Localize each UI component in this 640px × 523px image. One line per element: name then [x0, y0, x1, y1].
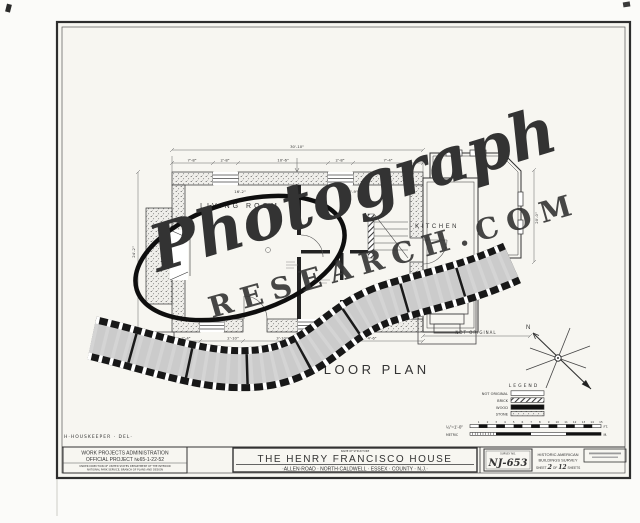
svg-text:5: 5: [513, 420, 515, 424]
dim-overall: 30'-10": [290, 144, 304, 149]
north-label: N: [526, 325, 530, 331]
svg-text:1: 1: [478, 420, 480, 424]
habs-line2: BUILDINGS SURVEY: [538, 458, 577, 463]
sheet-drawing: LIVING ROOM KITCHEN NOT ORIGINAL 30'-10"…: [0, 0, 640, 523]
delineator: H·HOUSKEEPER · DEL·: [64, 434, 133, 440]
legend-label-stone: STONE: [496, 412, 509, 416]
wpa-line1: WORK PROJECTS ADMINISTRATION: [81, 451, 169, 457]
wpa-line3: UNDER DIRECTION OF UNITED STATES DEPARTM…: [79, 464, 171, 468]
dim-top-3: 10'-6": [277, 158, 289, 163]
svg-text:9: 9: [548, 420, 550, 424]
of-word: OF: [553, 466, 557, 470]
svg-text:12: 12: [573, 420, 577, 424]
dim-bot-2: 2'-10": [227, 336, 239, 341]
structure-address: ·ALLEN·ROAD · NORTH·CALDWELL · ESSEX · C…: [282, 467, 428, 473]
svg-text:2: 2: [487, 420, 489, 424]
not-original-note: NOT ORIGINAL: [455, 330, 496, 335]
legend-label-wood: WOOD: [496, 406, 508, 410]
wpa-line4: NATIONAL PARK SERVICE, BRANCH OF PLANS A…: [87, 468, 163, 472]
total-num: 12: [558, 464, 566, 471]
legend-label-brick: BRICK: [497, 399, 509, 403]
scanned-habs-sheet: LIVING ROOM KITCHEN NOT ORIGINAL 30'-10"…: [0, 0, 640, 523]
wpa-line2: OFFICIAL PROJECT №65-1-22-52: [86, 457, 164, 463]
svg-text:3: 3: [495, 420, 497, 424]
dim-top-1: 7'-8": [188, 158, 197, 163]
sheet-word: SHEET: [536, 466, 547, 470]
scale-ratio: ¼"=1'-0": [446, 425, 463, 430]
svg-text:10: 10: [556, 420, 560, 424]
legend-label-not-original: NOT ORIGINAL: [482, 392, 508, 396]
svg-text:7: 7: [530, 420, 532, 424]
svg-text:13: 13: [582, 420, 586, 424]
metric-label: METRIC: [446, 433, 459, 437]
name-of-structure-label: NAME OF STRUCTURE: [341, 449, 370, 453]
metric-unit: M.: [604, 433, 608, 437]
habs-line1: HISTORIC AMERICAN: [537, 452, 578, 457]
svg-text:8: 8: [539, 420, 541, 424]
dim-left: 24'-2": [131, 246, 136, 258]
svg-text:15: 15: [599, 420, 603, 424]
feet-tick-numbers: 12 34 56 78 910 1112 1314 15: [478, 420, 603, 424]
structure-name: THE HENRY FRANCISCO HOUSE: [258, 454, 453, 465]
legend-title: LEGEND: [509, 383, 540, 389]
sheets-word: SHEETS: [567, 466, 580, 470]
svg-text:6: 6: [522, 420, 524, 424]
dim-top-2: 2'-8": [221, 158, 230, 163]
svg-text:4: 4: [504, 420, 506, 424]
survey-no-label: SURVEY NO.: [500, 452, 516, 456]
svg-text:14: 14: [590, 420, 594, 424]
dim-bot-4: 4'-6": [368, 336, 377, 341]
svg-text:11: 11: [564, 420, 568, 424]
survey-no: NJ-653: [488, 458, 528, 469]
sheet-num: 2: [546, 463, 552, 471]
feet-unit: FT.: [604, 425, 608, 429]
